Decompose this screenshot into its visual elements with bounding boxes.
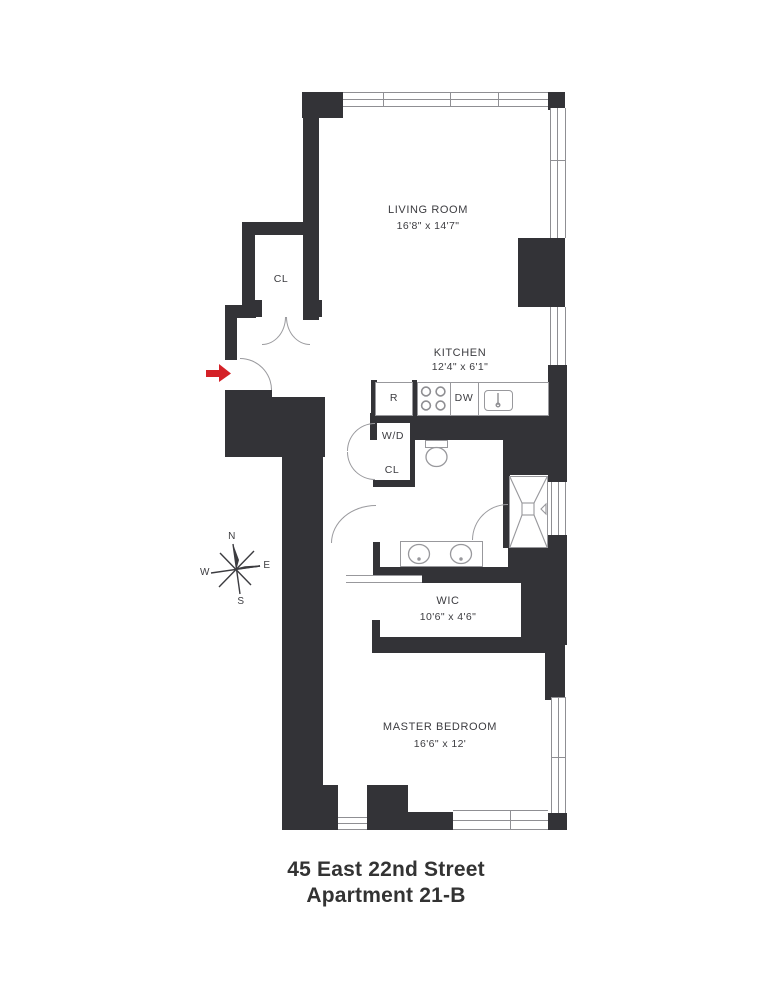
kitchen-label: KITCHEN (434, 347, 486, 359)
entry-arrow-icon (206, 364, 231, 382)
stove-burners-icon (422, 387, 445, 410)
kitchen-dims: 12'4" x 6'1" (432, 361, 489, 373)
toilet-bowl-icon (426, 448, 447, 467)
living-room-label: LIVING ROOM (388, 204, 468, 216)
vanity-sinks-icon (409, 545, 472, 564)
apartment-subtitle: Apartment 21-B (306, 884, 465, 908)
master-bedroom-dims: 16'6" x 12' (414, 738, 466, 750)
laundry-closet-label: CL (385, 464, 400, 476)
floor-plan: LIVING ROOM 16'8" x 14'7" KITCHEN 12'4" … (0, 0, 773, 1000)
master-bedroom-label: MASTER BEDROOM (383, 721, 497, 733)
fixture-details (0, 0, 773, 1000)
address-title: 45 East 22nd Street (287, 858, 485, 882)
laundry-label: W/D (382, 430, 404, 442)
refrigerator-label: R (390, 392, 398, 404)
wic-label: WIC (436, 595, 459, 607)
compass-n-label: N (228, 531, 236, 542)
compass-s-label: S (237, 596, 244, 607)
living-room-dims: 16'8" x 14'7" (397, 220, 460, 232)
shower-icon (510, 477, 547, 547)
compass-w-label: W (200, 567, 210, 578)
compass-icon (211, 544, 260, 594)
dishwasher-label: DW (455, 392, 474, 404)
entry-closet-label: CL (274, 273, 289, 285)
compass-e-label: E (263, 560, 270, 571)
kitchen-faucet-icon (496, 393, 500, 407)
wic-dims: 10'6" x 4'6" (420, 611, 477, 623)
